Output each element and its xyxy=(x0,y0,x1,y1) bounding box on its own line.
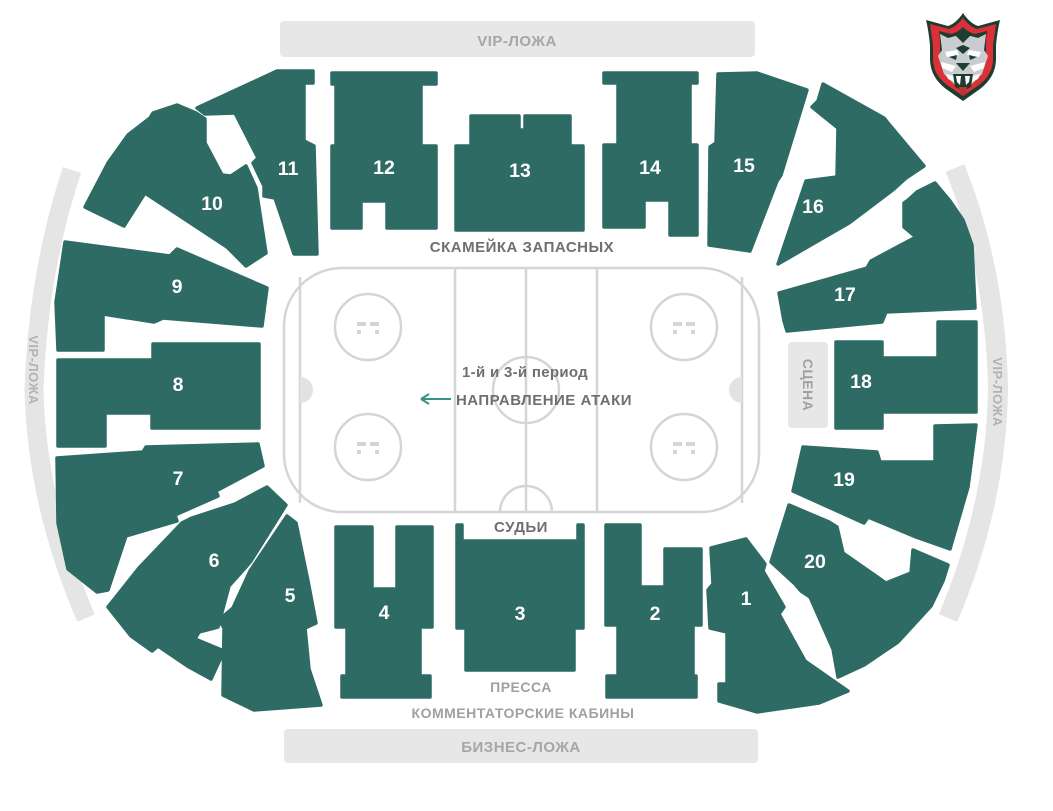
svg-text:3: 3 xyxy=(515,603,526,625)
svg-text:13: 13 xyxy=(509,160,531,182)
svg-text:5: 5 xyxy=(285,585,296,607)
svg-text:VIP-ЛОЖА: VIP-ЛОЖА xyxy=(26,335,41,405)
svg-text:СУДЬИ: СУДЬИ xyxy=(494,519,548,536)
svg-text:20: 20 xyxy=(804,551,826,573)
svg-text:17: 17 xyxy=(834,284,856,306)
svg-text:КОММЕНТАТОРСКИЕ КАБИНЫ: КОММЕНТАТОРСКИЕ КАБИНЫ xyxy=(412,705,635,721)
svg-text:НАПРАВЛЕНИЕ АТАКИ: НАПРАВЛЕНИЕ АТАКИ xyxy=(456,392,632,409)
svg-text:19: 19 xyxy=(833,469,855,491)
svg-text:VIP-ЛОЖА: VIP-ЛОЖА xyxy=(990,357,1005,427)
svg-text:1-й и 3-й период: 1-й и 3-й период xyxy=(462,364,588,381)
svg-text:16: 16 xyxy=(802,196,824,218)
svg-text:11: 11 xyxy=(278,158,299,180)
svg-text:2: 2 xyxy=(650,603,661,625)
svg-text:9: 9 xyxy=(172,276,183,298)
svg-text:VIP-ЛОЖА: VIP-ЛОЖА xyxy=(477,33,557,50)
svg-text:7: 7 xyxy=(173,468,184,490)
svg-text:10: 10 xyxy=(201,193,223,215)
svg-text:14: 14 xyxy=(639,157,661,179)
svg-text:СЦЕНА: СЦЕНА xyxy=(800,359,816,411)
svg-text:БИЗНЕС-ЛОЖА: БИЗНЕС-ЛОЖА xyxy=(461,739,581,756)
svg-text:15: 15 xyxy=(733,155,755,177)
svg-text:СКАМЕЙКА ЗАПАСНЫХ: СКАМЕЙКА ЗАПАСНЫХ xyxy=(430,238,614,256)
svg-text:8: 8 xyxy=(173,374,184,396)
svg-text:4: 4 xyxy=(379,602,390,624)
svg-text:ПРЕССА: ПРЕССА xyxy=(490,679,552,695)
svg-text:1: 1 xyxy=(741,588,752,610)
svg-text:6: 6 xyxy=(209,550,220,572)
svg-text:18: 18 xyxy=(850,371,872,393)
svg-text:12: 12 xyxy=(373,157,395,179)
